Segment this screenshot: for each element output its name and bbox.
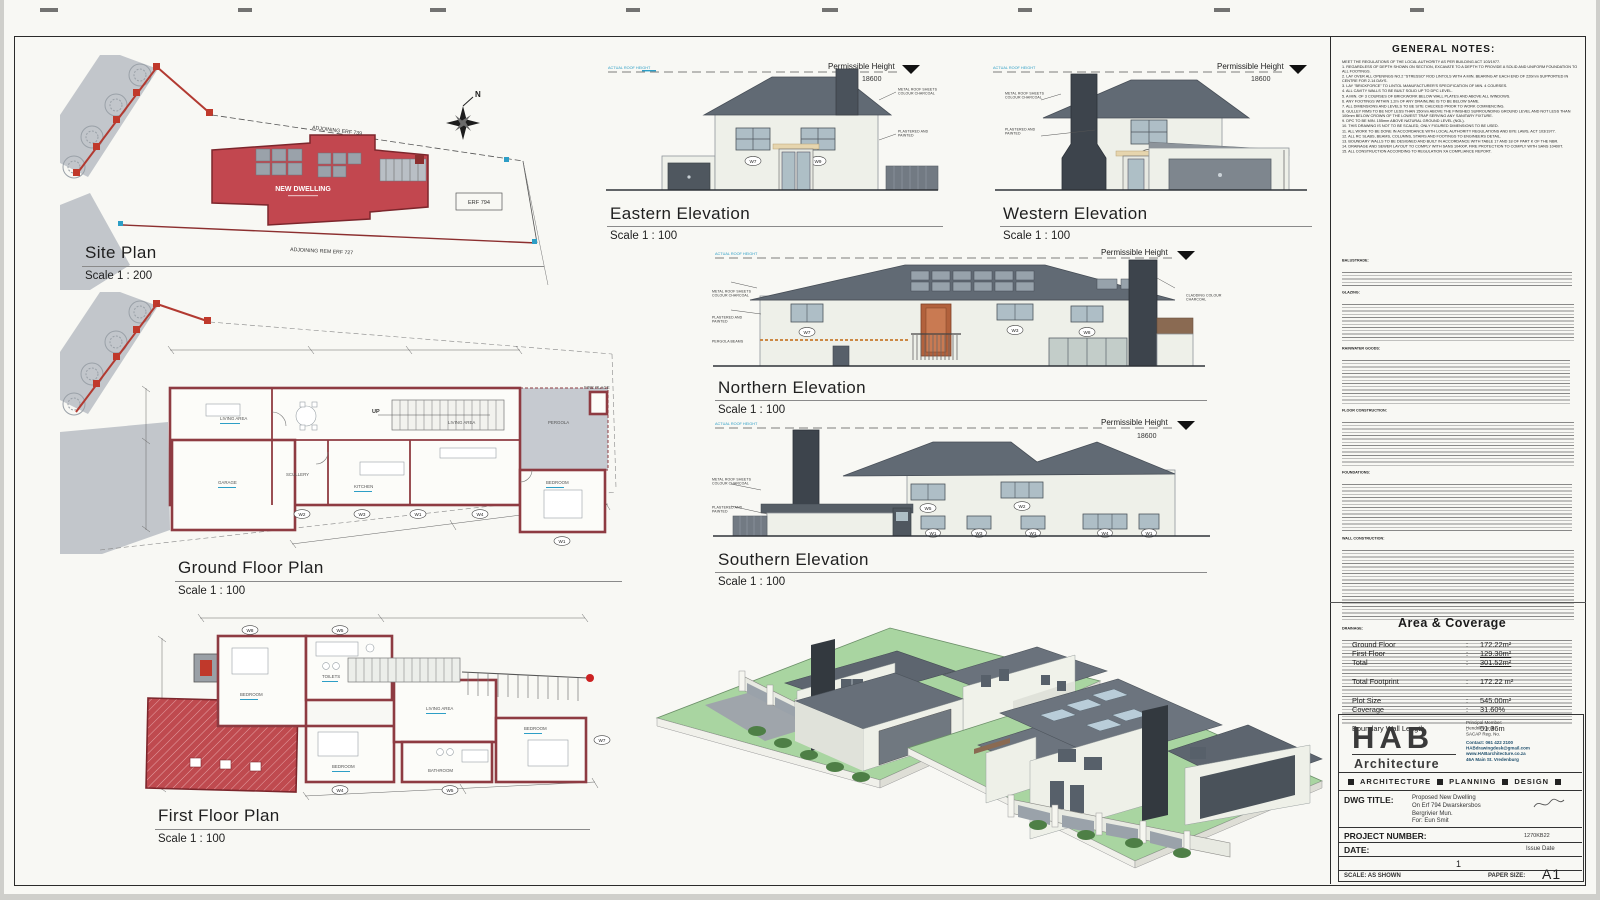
perm-height-label: Permissible Height [1217, 62, 1284, 71]
spec-section-heading: GLAZING: [1342, 290, 1577, 295]
date-label: DATE: [1344, 845, 1369, 855]
eastern-elevation-title: Eastern Elevation [610, 204, 750, 224]
spec-text-lines [1342, 422, 1574, 466]
window-label: W5 [447, 788, 454, 793]
row-label: Total Footprint [1352, 677, 1454, 686]
window-label: W2 [1019, 504, 1026, 509]
new-dwelling-label: NEW DWELLING [275, 186, 331, 193]
title-underline [715, 572, 1207, 573]
perm-height-value: 18600 [1251, 76, 1271, 83]
spec-text-lines [1342, 272, 1572, 286]
southern-elevation-drawing: Permissible Height 18600 ACTUAL ROOF HEI… [705, 418, 1220, 548]
perm-height-marker-icon [1289, 65, 1307, 74]
roof-note: METAL ROOF SHEETS COLOUR CHARCOAL [712, 290, 755, 298]
perm-height-marker-icon [1177, 251, 1195, 260]
perm-height-marker-icon [1177, 421, 1195, 430]
window-label: W5 [925, 506, 932, 511]
northern-elevation-drawing: Permissible Height 18600 ACTUAL ROOF HEI… [705, 248, 1220, 378]
section-divider [1330, 602, 1586, 603]
first-floor-plan-scale: Scale 1 : 100 [158, 833, 225, 845]
general-note: 10. THIS DRAWING IS NOT TO BE SCALED, ON… [1342, 124, 1582, 128]
window-label: W4 [477, 512, 484, 517]
window-label: W3 [359, 512, 366, 517]
folding-doors [1049, 338, 1127, 366]
fold-mark [626, 8, 640, 12]
architectural-sheet: NEW DWELLING ERF 794 ADJOINING ERF 739 A… [0, 0, 1600, 900]
room-label-bedroom: BEDROOM [546, 480, 569, 485]
fold-mark [822, 8, 838, 12]
first-floor-plan-title: First Floor Plan [158, 806, 280, 826]
garage-wing [1149, 142, 1289, 190]
spec-text-lines [1342, 304, 1574, 342]
room-label-toilets: TOILETS [322, 674, 340, 679]
fold-mark [1410, 8, 1424, 12]
spec-section-heading: BALUSTRADE: [1342, 258, 1577, 263]
dwg-title-line: On Erf 794 Dwarskersbos [1412, 803, 1481, 811]
row-label: First Floor [1352, 649, 1454, 658]
perm-height-value: 18600 [1137, 433, 1157, 440]
spec-text-lines [1342, 484, 1572, 532]
window-label: W1 [415, 512, 422, 517]
general-note: 2. LAY OVER ALL OPENINGS NO.2 "STRESSO" … [1342, 75, 1582, 84]
room-label-bathroom: BATHROOM [428, 768, 453, 773]
roof-note: METAL ROOF SHEETS COLOUR CHARCOAL [898, 88, 941, 96]
title-block-rule [1338, 790, 1582, 791]
service-architecture: ARCHITECTURE [1360, 777, 1431, 786]
western-elevation-scale: Scale 1 : 100 [1003, 230, 1070, 242]
window-label: W9 [815, 159, 822, 164]
row-value: 545.00m² [1480, 696, 1550, 705]
principal-contact-details: Principal Member: Hendrik Kandt SACAP Re… [1466, 720, 1586, 762]
roof-note: METAL ROOF SHEETS COLOUR CHARCOAL [712, 478, 755, 486]
square-bullet-icon [1555, 779, 1561, 785]
dwg-title-label: DWG TITLE: [1344, 795, 1394, 805]
row-label: Total [1352, 658, 1454, 667]
perm-height-label: Permissible Height [1101, 418, 1168, 427]
project-number-label: PROJECT NUMBER: [1344, 831, 1427, 841]
room-label-bedroom3: BEDROOM [524, 726, 547, 731]
table-row: First Floor : 129.30m² [1352, 649, 1562, 658]
room-label-garage: GARAGE [218, 480, 237, 485]
table-row: Plot Size : 545.00m² [1352, 696, 1562, 705]
title-underline [82, 266, 544, 267]
window-label: W4 [1102, 531, 1109, 536]
row-value: 129.30m² [1480, 649, 1550, 658]
north-label: N [475, 90, 481, 99]
house-body: W6 [1043, 74, 1289, 190]
room-label-kitchen: KITCHEN [354, 484, 373, 489]
square-bullet-icon [1502, 779, 1508, 785]
erf-label: ERF 794 [468, 200, 490, 206]
general-notes-body: MEET THE REGULATIONS OF THE LOCAL AUTHOR… [1342, 60, 1582, 252]
fold-mark [40, 8, 58, 12]
general-note: 1. REGARDLESS OF DEPTH SHOWN ON SECTION,… [1342, 65, 1582, 74]
hab-logo-subtitle: Architecture [1354, 757, 1440, 771]
dwg-title-line: For: Eun Smit [1412, 818, 1481, 826]
stair-up-label: UP [372, 409, 380, 415]
side-wing [1157, 318, 1193, 366]
wall-note: PLASTERED AND PAINTED [712, 506, 755, 514]
perspective-view-2 [890, 653, 1335, 868]
wall-note: PLASTERED AND PAINTED [712, 316, 755, 324]
boundary-fence [886, 166, 938, 190]
spec-text-lines [1342, 550, 1574, 622]
window-label: W3 [976, 531, 983, 536]
window-label: W7 [599, 738, 606, 743]
house-body: W7 W9 [662, 69, 938, 190]
hab-logo: HAB [1352, 720, 1434, 756]
table-row: Total : 301.52m² [1352, 658, 1562, 667]
general-note: 4. ALL CAVITY WALLS TO BE BUILT SOLID UP… [1342, 89, 1582, 93]
north-compass-icon: N [446, 90, 481, 140]
balustrade-end-marker [586, 674, 594, 682]
fold-mark [430, 8, 446, 12]
site-plan-title: Site Plan [85, 243, 157, 263]
window-label: W1 [559, 539, 566, 544]
general-note: 8. GULLEY RIMS TO BE NOT LESS THAN 150mm… [1342, 110, 1582, 119]
project-number-value: 1270KB22 [1524, 833, 1550, 839]
dwg-title-line: Bergrivier Mun. [1412, 811, 1481, 819]
title-underline [607, 226, 943, 227]
boundary-fence [733, 516, 767, 536]
fold-mark [1018, 8, 1032, 12]
perm-height-marker-icon [902, 65, 920, 74]
title-underline [715, 400, 1207, 401]
cladding-note: CLADDING COLOUR CHARCOAL [1186, 294, 1229, 302]
window-label: W1 [1146, 531, 1153, 536]
area-coverage-title: Area & Coverage [1398, 616, 1506, 630]
northern-elevation-scale: Scale 1 : 100 [718, 404, 785, 416]
title-underline [155, 829, 590, 830]
eastern-elevation-drawing: Permissible Height 18600 ACTUAL ROOF HEI… [600, 58, 945, 203]
fold-mark [1214, 8, 1230, 12]
title-underline [1000, 226, 1312, 227]
title-block-rule [1338, 772, 1582, 773]
house-body: W7 W3 W8 [750, 260, 1193, 366]
title-block-rule [1338, 842, 1582, 843]
actual-roof-height-label: ACTUAL ROOF HEIGHT [715, 252, 758, 256]
room-label-scullery: SCULLERY [286, 472, 309, 477]
house-body: W5 W2 W1 W3 W1 [733, 430, 1175, 537]
general-notes-title: GENERAL NOTES: [1392, 44, 1495, 55]
service-planning: PLANNING [1449, 777, 1496, 786]
table-row: Total Footprint : 172.22 m² [1352, 677, 1562, 686]
adjoining-erf-bottom-label: ADJOINING REM ERF 727 [290, 247, 353, 256]
window-label: W8 [1084, 330, 1091, 335]
window-label: W4 [337, 788, 344, 793]
row-label: Plot Size [1352, 696, 1454, 705]
services-strip: ARCHITECTURE PLANNING DESIGN [1348, 777, 1561, 786]
erf-number-box: ERF 794 [456, 193, 502, 210]
site-plan-scale: Scale 1 : 200 [85, 270, 152, 282]
new-dwelling-footprint: NEW DWELLING [212, 135, 428, 225]
actual-roof-height-label: ACTUAL ROOF HEIGHT [608, 66, 651, 70]
room-label-bedroom2: BEDROOM [332, 764, 355, 769]
pergola-note: PERGOLA BEAMS [712, 340, 755, 344]
ground-floor-plan-drawing: UP LIVING AREA GARAGE SCULLERY KITCHEN L… [60, 292, 620, 557]
title-underline [175, 581, 622, 582]
entrance-door [773, 144, 819, 190]
fold-mark [238, 8, 252, 12]
window-label: W1 [1030, 531, 1037, 536]
chimney-3d [1142, 705, 1168, 821]
signature [1532, 796, 1566, 812]
table-row: Ground Floor : 172.22m² [1352, 640, 1562, 649]
row-label: Ground Floor [1352, 640, 1454, 649]
northern-elevation-title: Northern Elevation [718, 378, 866, 398]
square-bullet-icon [1437, 779, 1443, 785]
room-label-living2: LIVING AREA [448, 420, 475, 425]
window-label: W8 [247, 628, 254, 633]
window-label: W7 [804, 330, 811, 335]
window-label: W2 [299, 512, 306, 517]
perm-height-label: Permissible Height [1101, 248, 1168, 257]
room-label-fireplace: FIRE PLACE [584, 385, 610, 390]
row-value: 301.52m² [1480, 658, 1550, 667]
date-value: Issue Date [1526, 846, 1555, 852]
window-label: W5 [337, 628, 344, 633]
southern-elevation-title: Southern Elevation [718, 550, 869, 570]
service-design: DESIGN [1514, 777, 1549, 786]
general-note: 15. ALL CONSTRUCTION ACCORDING TO REGULA… [1342, 150, 1582, 154]
stair [348, 658, 460, 682]
general-note: 5. A MIN. OF 3 COURSES OF BRICKWORK BELO… [1342, 94, 1582, 98]
perm-height-value: 18600 [862, 76, 882, 83]
row-value: 172.22m² [1480, 640, 1550, 649]
ground-floor-plan-title: Ground Floor Plan [178, 558, 324, 578]
room-label-living: LIVING AREA [426, 706, 453, 711]
spec-section-heading: FLOOR CONSTRUCTION: [1342, 408, 1577, 413]
spec-section-heading: WALL CONSTRUCTION: [1342, 536, 1577, 541]
sheet-page-number: 1 [1456, 859, 1461, 869]
dwg-title-line: Proposed New Dwelling [1412, 795, 1481, 803]
window-label: W1 [930, 531, 937, 536]
table-row: Coverage : 31.60% [1352, 705, 1562, 714]
actual-roof-height-label: ACTUAL ROOF HEIGHT [993, 66, 1036, 70]
room-label-bedroom1: BEDROOM [240, 692, 263, 697]
paper-size-value: A1 [1542, 866, 1561, 882]
general-note: 11. ALL WORK TO BE DONE IN ACCORDANCE WI… [1342, 129, 1582, 133]
window-label: W3 [1012, 328, 1019, 333]
ground-floor-plan-scale: Scale 1 : 100 [178, 585, 245, 597]
contact-address: 46A Main St. Vredenburg [1466, 757, 1586, 763]
logo-underline [1352, 754, 1456, 755]
roof-note: METAL ROOF SHEETS COLOUR CHARCOAL [1005, 92, 1048, 100]
row-label: Coverage [1352, 705, 1454, 714]
row-value: 31.60% [1480, 705, 1550, 714]
first-floor-plan-drawing: BEDROOM TOILETS LIVING AREA BATHROOM BED… [140, 600, 615, 805]
square-bullet-icon [1348, 779, 1354, 785]
stair: UP [372, 400, 504, 430]
row-value: 172.22 m² [1480, 677, 1550, 686]
low-wing [761, 504, 913, 536]
eastern-elevation-scale: Scale 1 : 100 [610, 230, 677, 242]
window-label: W7 [750, 159, 757, 164]
title-block-rule [1338, 856, 1582, 857]
western-elevation-title: Western Elevation [1003, 204, 1147, 224]
title-block-rule [1338, 827, 1582, 828]
spec-section-heading: FOUNDATIONS: [1342, 470, 1577, 475]
chimney-box [194, 654, 218, 682]
wall-note: PLASTERED AND PAINTED [1005, 128, 1048, 136]
spec-section-heading: RAINWATER GOODS: [1342, 346, 1577, 351]
actual-roof-height-label: ACTUAL ROOF HEIGHT [715, 422, 758, 426]
room-label-living1: LIVING AREA [220, 416, 247, 421]
wall-note: PLASTERED AND PAINTED [898, 130, 941, 138]
scale-as-shown: SCALE: AS SHOWN [1344, 873, 1401, 879]
spec-text-lines [1342, 360, 1570, 404]
room-label-pergola: PERGOLA [548, 420, 569, 425]
paper-size-label: PAPER SIZE: [1488, 873, 1525, 879]
dwg-title-text: Proposed New Dwelling On Erf 794 Dwarske… [1412, 795, 1481, 826]
